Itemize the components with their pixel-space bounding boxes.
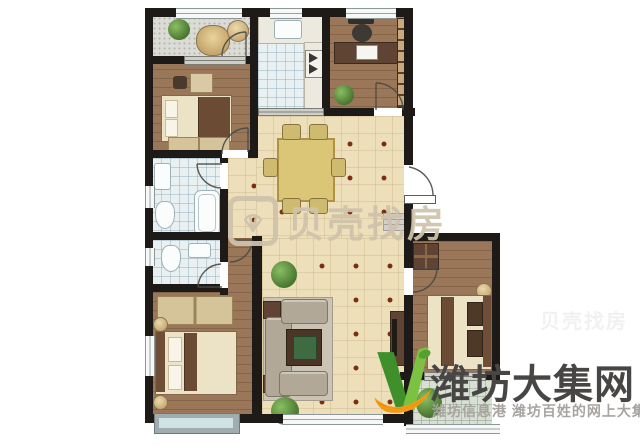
window [270, 8, 302, 19]
kitchen-sink [274, 20, 302, 39]
coffee-table [286, 329, 322, 366]
headboard [156, 332, 165, 392]
burner-icon [309, 53, 318, 63]
shell-icon [228, 196, 278, 246]
wall [148, 232, 228, 240]
bed [155, 331, 237, 395]
bathroom-sink [188, 243, 211, 258]
bed [161, 95, 232, 142]
wardrobe [157, 296, 233, 325]
door-opening [374, 108, 402, 116]
desk [190, 73, 213, 93]
coffee-table-top [293, 336, 317, 360]
dining-chair [282, 124, 301, 140]
laptop [356, 45, 378, 60]
bathtub [194, 190, 220, 236]
dining-chair [263, 158, 278, 177]
pillow [168, 337, 182, 362]
nightstand-lamp [153, 395, 168, 410]
door-opening [220, 163, 228, 189]
bay-window [154, 413, 240, 434]
side-table [227, 20, 249, 42]
wall [404, 8, 413, 165]
door-opening [404, 268, 413, 295]
office-chair [352, 24, 372, 42]
bathroom-sink [154, 163, 171, 190]
wall [250, 8, 258, 158]
plant [271, 261, 297, 288]
floorplan-image: 贝壳找房 贝壳找房 潍坊大集网 潍坊信息港 潍坊百姓的网上大集 [0, 0, 640, 445]
beike-watermark: 贝壳找房 [228, 194, 447, 248]
blanket [198, 97, 230, 138]
pillow [168, 365, 182, 390]
dining-table [277, 138, 335, 202]
sliding-door [258, 108, 324, 116]
dining-chair [331, 158, 346, 177]
bathtub-inner [198, 194, 216, 232]
desk-chair [173, 76, 187, 89]
door-opening [222, 150, 248, 158]
pillow [165, 100, 178, 118]
plant [334, 85, 354, 105]
blanket [184, 333, 197, 391]
lounge-chair [196, 25, 230, 56]
pillow [165, 119, 178, 137]
bay-window-glass [159, 418, 233, 428]
nightstand-lamp [153, 317, 168, 332]
wall [330, 108, 415, 116]
window [346, 8, 396, 19]
dining-chair [309, 124, 328, 140]
balcony-window [406, 424, 500, 434]
toilet [155, 201, 175, 229]
window [145, 186, 155, 208]
sofa [281, 299, 328, 324]
window [176, 8, 242, 19]
window [283, 414, 383, 425]
wall [252, 236, 262, 414]
ghost-watermark: 贝壳找房 [540, 305, 628, 334]
plant [168, 19, 190, 40]
sliding-door [184, 56, 246, 65]
burner-icon [309, 64, 318, 74]
beike-brand-text: 贝壳找房 [287, 194, 447, 248]
door-opening [220, 262, 228, 288]
wall [322, 8, 330, 116]
window [145, 336, 155, 376]
wall [148, 284, 228, 292]
toilet [161, 245, 181, 272]
sofa [279, 371, 328, 396]
weifang-watermark-subtitle: 潍坊信息港 潍坊百姓的网上大集 [432, 401, 640, 421]
window [145, 248, 155, 266]
v-leaf-logo-icon [372, 346, 434, 418]
stove [305, 50, 323, 78]
pillow [467, 302, 483, 326]
